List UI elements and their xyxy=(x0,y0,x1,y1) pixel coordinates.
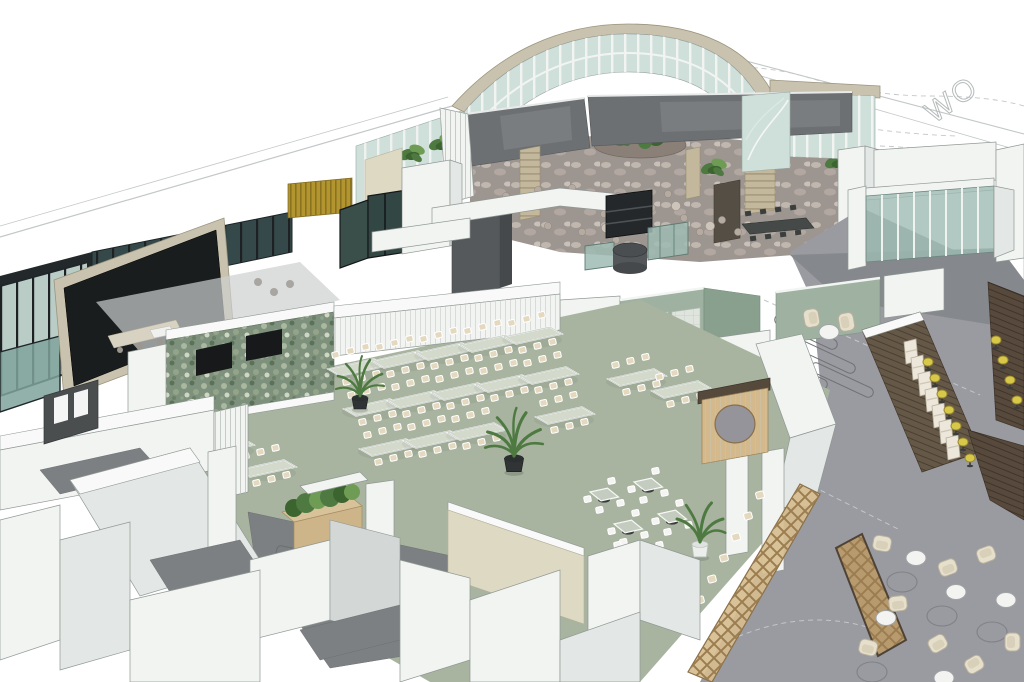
atrium-chair xyxy=(664,190,671,197)
stone-pier xyxy=(686,147,700,199)
lounge-table xyxy=(946,585,966,600)
lounge-table xyxy=(819,325,839,340)
cylinder-planter xyxy=(613,243,647,274)
glass-display-case xyxy=(585,242,614,270)
glass-display-case xyxy=(648,222,688,260)
lounge-table xyxy=(876,611,896,626)
wall xyxy=(60,522,130,670)
architectural-render-canvas: WO xyxy=(0,0,1024,682)
lounge-armchair xyxy=(888,595,907,612)
atrium-chair xyxy=(718,216,725,223)
sage-wall-side xyxy=(704,288,760,340)
lounge-table xyxy=(934,671,954,682)
glass-room-side-wall xyxy=(994,186,1014,258)
glass-room-back-wall xyxy=(848,186,866,270)
atrium-chair xyxy=(696,228,703,235)
fence-row-chair xyxy=(719,554,729,563)
feature-window xyxy=(742,92,790,172)
lounge-table xyxy=(996,593,1016,608)
atrium-table xyxy=(705,221,714,230)
timber-arch xyxy=(698,378,770,464)
white-wall xyxy=(884,268,944,318)
lounge-armchair xyxy=(838,312,856,332)
lounge-armchair xyxy=(803,308,821,328)
atrium-chair xyxy=(680,214,687,221)
lounge-armchair xyxy=(1005,633,1020,651)
wall xyxy=(0,505,60,660)
render-stage: WO xyxy=(0,0,1024,682)
black-framed-glazing xyxy=(340,200,368,268)
lounge-armchair xyxy=(872,535,892,553)
lounge-table xyxy=(906,551,926,566)
fence-row-chair xyxy=(755,491,765,500)
atrium-chair xyxy=(734,228,741,235)
back-bar-shelf xyxy=(606,190,652,238)
fence-row-chair xyxy=(731,533,741,542)
fence-row-chair xyxy=(743,512,753,521)
atrium-table xyxy=(671,201,680,210)
atrium-chair xyxy=(578,228,585,235)
fence-row-chair xyxy=(707,575,717,584)
bar-booth xyxy=(946,435,960,460)
atrium-chair xyxy=(544,222,551,229)
